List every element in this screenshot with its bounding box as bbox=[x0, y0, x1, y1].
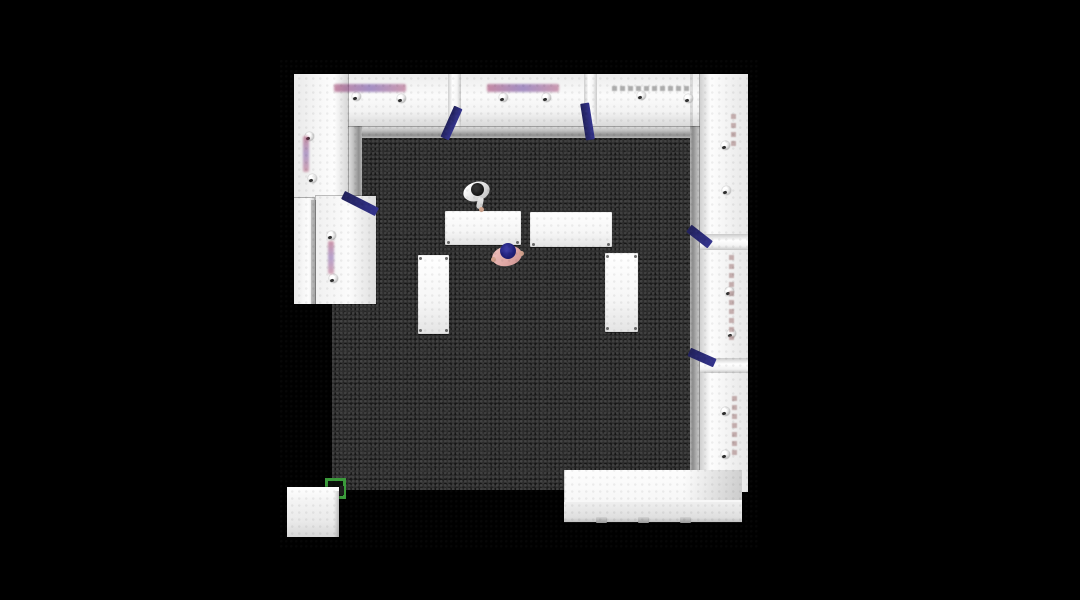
counter-corner-shade bbox=[684, 470, 742, 500]
spotlight-icon bbox=[499, 93, 508, 102]
booth-carpet bbox=[332, 136, 692, 490]
wall-top bbox=[294, 74, 748, 126]
spotlight-icon bbox=[327, 231, 336, 240]
spotlight-icon bbox=[721, 407, 730, 416]
counter-front-face bbox=[564, 502, 742, 522]
reception-counter bbox=[564, 470, 742, 522]
person-hand bbox=[519, 251, 524, 256]
cube-podium bbox=[287, 487, 339, 537]
floor-skirting-top bbox=[346, 124, 692, 138]
spotlight-icon bbox=[352, 92, 361, 101]
wall-logo-text bbox=[612, 86, 690, 91]
wall-logo-text bbox=[731, 114, 736, 148]
wall-logo-text bbox=[732, 396, 737, 458]
counter-foot bbox=[680, 517, 691, 523]
wall-logo-graphic bbox=[487, 84, 559, 92]
person-hand bbox=[491, 257, 496, 262]
wall-logo-graphic bbox=[328, 241, 334, 274]
spotlight-icon bbox=[542, 93, 551, 102]
spotlight-icon bbox=[397, 94, 406, 103]
spotlight-icon bbox=[308, 174, 317, 183]
spotlight-icon bbox=[721, 450, 730, 459]
wall-logo-graphic bbox=[334, 84, 406, 92]
podium-front-face bbox=[287, 500, 339, 537]
person-visitor bbox=[491, 241, 525, 269]
floor-box-notch bbox=[339, 486, 344, 495]
spotlight-icon bbox=[684, 94, 693, 103]
display-table-1 bbox=[445, 211, 521, 245]
booth-render bbox=[0, 0, 1080, 600]
podium-top-face bbox=[287, 487, 339, 500]
spotlight-icon bbox=[637, 91, 646, 100]
display-table-2 bbox=[530, 212, 612, 247]
spotlight-icon bbox=[722, 186, 731, 195]
wall-logo-graphic bbox=[303, 136, 309, 172]
person-hair bbox=[471, 183, 484, 196]
spotlight-icon bbox=[329, 274, 338, 283]
person-hand bbox=[479, 207, 484, 212]
display-table-4 bbox=[605, 253, 638, 332]
person-standing bbox=[462, 180, 494, 214]
podium-side-shade bbox=[334, 491, 339, 537]
spotlight-icon bbox=[721, 141, 730, 150]
person-hair bbox=[500, 243, 516, 259]
counter-foot bbox=[638, 517, 649, 523]
wall-logo-text bbox=[729, 255, 734, 340]
wall-right bbox=[700, 74, 748, 492]
counter-foot bbox=[596, 517, 607, 523]
display-table-3 bbox=[418, 255, 449, 334]
